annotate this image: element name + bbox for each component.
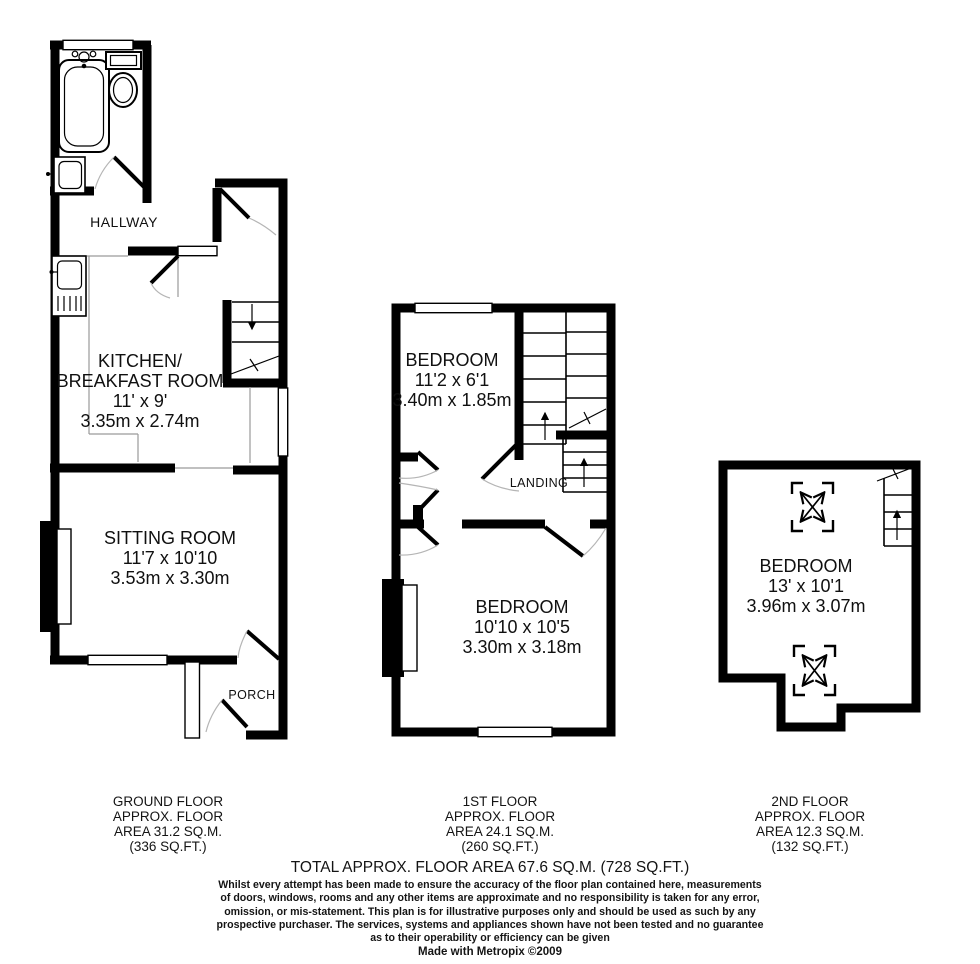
- bay-window: [382, 579, 417, 677]
- svg-text:BREAKFAST ROOM: BREAKFAST ROOM: [57, 371, 224, 391]
- svg-text:3.30m x 3.18m: 3.30m x 3.18m: [462, 637, 581, 657]
- roof-window-icon: [794, 646, 835, 695]
- bedroom2-label: BEDROOM 10'10 x 10'5 3.30m x 3.18m: [462, 597, 581, 657]
- ground-floor-caption: GROUND FLOOR APPROX. FLOOR AREA 31.2 SQ.…: [48, 794, 288, 854]
- svg-text:11'7 x 10'10: 11'7 x 10'10: [123, 548, 218, 568]
- landing-label: LANDING: [510, 476, 568, 490]
- return-staircase-icon: [563, 439, 607, 492]
- bathroom-window: [63, 40, 133, 49]
- porch-inner-door: [238, 631, 279, 659]
- bathtub-icon: [59, 51, 109, 152]
- svg-text:11' x 9': 11' x 9': [113, 391, 168, 411]
- second-floor-plan: BEDROOM 13' x 10'1 3.96m x 3.07m: [723, 465, 916, 727]
- svg-text:13' x 10'1: 13' x 10'1: [768, 576, 844, 596]
- hallway-label: HALLWAY: [90, 214, 158, 230]
- porch-window: [185, 662, 200, 738]
- credit-text: Made with Metropix ©2009: [0, 946, 980, 959]
- svg-text:3.40m x 1.85m: 3.40m x 1.85m: [392, 390, 511, 410]
- svg-text:10'10 x 10'5: 10'10 x 10'5: [474, 617, 570, 637]
- svg-text:3.35m x 2.74m: 3.35m x 2.74m: [80, 411, 199, 431]
- bedroom1-label: BEDROOM 11'2 x 6'1 3.40m x 1.85m: [392, 350, 511, 410]
- sitting-room-window: [88, 655, 167, 664]
- first-floor-plan: BEDROOM 11'2 x 6'1 3.40m x 1.85m LANDING…: [382, 303, 616, 736]
- kitchen-label: KITCHEN/ BREAKFAST ROOM 11' x 9' 3.35m x…: [57, 351, 224, 431]
- svg-text:BEDROOM: BEDROOM: [405, 350, 498, 370]
- bedroom2-window: [478, 727, 552, 736]
- svg-text:3.96m x 3.07m: 3.96m x 3.07m: [746, 596, 865, 616]
- floorplan-page: HALLWAY KITCHEN/ BREAKFAST ROOM 11' x 9'…: [0, 0, 980, 964]
- disclaimer-text: Whilst every attempt has been made to en…: [0, 879, 980, 960]
- bedroom-label: BEDROOM 13' x 10'1 3.96m x 3.07m: [746, 556, 865, 616]
- first-staircase-icon: [524, 308, 607, 444]
- bay-window: [40, 521, 71, 632]
- ground-floor-plan: HALLWAY KITCHEN/ BREAKFAST ROOM 11' x 9'…: [40, 40, 288, 739]
- porch-outer-door: [206, 700, 247, 732]
- total-area-text: TOTAL APPROX. FLOOR AREA 67.6 SQ.M. (728…: [0, 859, 980, 877]
- first-floor-caption: 1ST FLOOR APPROX. FLOOR AREA 24.1 SQ.M. …: [380, 794, 620, 854]
- roof-window-icon: [792, 483, 833, 531]
- second-staircase-icon: [877, 467, 914, 546]
- toilet-icon: [106, 52, 141, 107]
- kitchen-sink-icon: [50, 256, 87, 316]
- svg-text:BEDROOM: BEDROOM: [759, 556, 852, 576]
- bedroom2-door-left: [399, 527, 438, 555]
- porch-label: PORCH: [228, 688, 275, 702]
- kitchen-window: [278, 388, 287, 456]
- svg-text:BEDROOM: BEDROOM: [475, 597, 568, 617]
- kitchen-door: [151, 256, 178, 298]
- svg-text:KITCHEN/: KITCHEN/: [98, 351, 182, 371]
- bedroom1-door: [399, 452, 438, 521]
- bedroom2-door-right: [545, 527, 606, 556]
- svg-text:11'2 x 6'1: 11'2 x 6'1: [415, 370, 490, 390]
- svg-text:SITTING ROOM: SITTING ROOM: [104, 528, 236, 548]
- hallway-opening: [178, 246, 217, 255]
- second-floor-caption: 2ND FLOOR APPROX. FLOOR AREA 12.3 SQ.M. …: [690, 794, 930, 854]
- bedroom1-window: [415, 303, 492, 312]
- front-door: [220, 189, 276, 235]
- svg-text:3.53m x 3.30m: 3.53m x 3.30m: [110, 568, 229, 588]
- bathroom-door: [95, 157, 147, 190]
- sitting-room-label: SITTING ROOM 11'7 x 10'10 3.53m x 3.30m: [104, 528, 236, 588]
- ground-staircase-icon: [231, 302, 279, 374]
